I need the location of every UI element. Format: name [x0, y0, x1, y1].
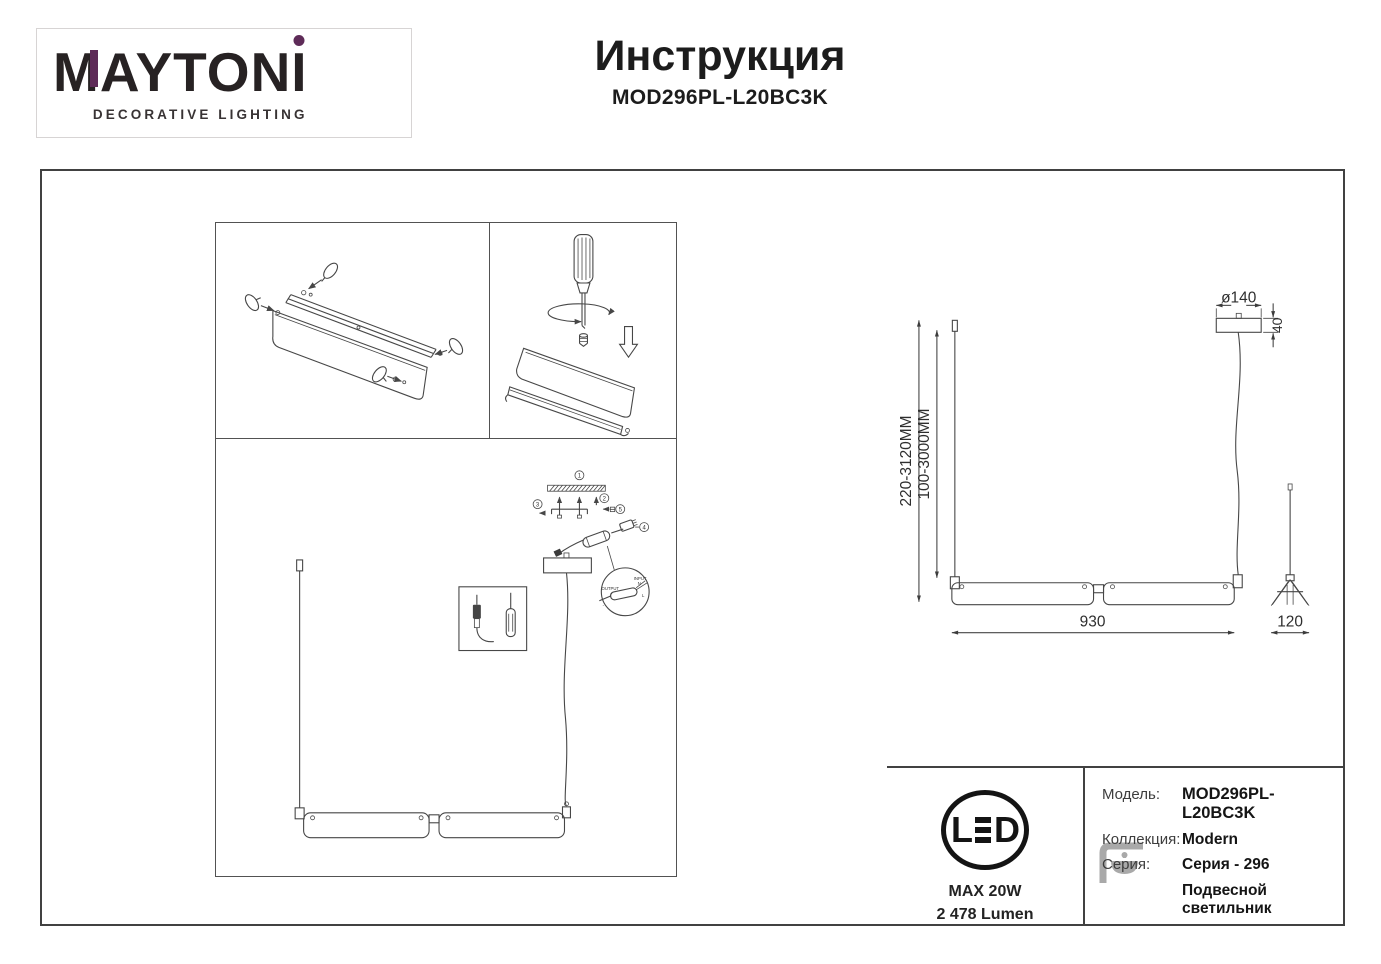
logo-letter-m: M [53, 45, 100, 100]
spec-box: L D MAX 20W 2 478 Lumen Модель: MOD296PL… [887, 766, 1343, 924]
fixture-end-view [1271, 484, 1309, 606]
thumb-screw-2 [243, 290, 266, 313]
washer-1 [302, 290, 306, 294]
dim-fixture-width: 120 [1271, 614, 1309, 633]
upper-shade [517, 348, 635, 417]
arrow-2 [261, 306, 274, 311]
led-logo: L D [941, 790, 1029, 870]
page-title: Инструкция [500, 32, 940, 81]
mounting-bracket [552, 497, 588, 518]
assembly-step-1 [216, 223, 490, 439]
product-info-cell: Модель: MOD296PL-L20BC3K Коллекция: Mode… [1085, 768, 1343, 924]
logo-m-accent [90, 50, 98, 87]
fixture-front-view [952, 583, 1234, 605]
svg-text:220-3120MM: 220-3120MM [898, 415, 915, 506]
step2-drawing [490, 223, 676, 438]
arrow-1 [309, 280, 322, 289]
shade-panel [273, 311, 427, 400]
logo-letter-i: I [291, 45, 307, 100]
lower-bar [506, 387, 630, 436]
model-number: MOD296PL-L20BC3K [500, 86, 940, 110]
collection-value: Modern [1182, 831, 1238, 849]
collection-label: Коллекция: [1102, 831, 1182, 848]
dimensions-panel: 220-3120MM 100-3000MM ø140 [887, 169, 1345, 926]
max-power: MAX 20W [949, 883, 1022, 901]
thumb-screw-3 [370, 364, 393, 387]
ceiling-canopy [544, 553, 592, 573]
screw [580, 334, 588, 347]
left-suspension-rod [950, 320, 959, 588]
tools-inset-box [459, 587, 527, 651]
svg-text:40: 40 [1269, 317, 1285, 333]
led-letter-d: D [994, 812, 1019, 848]
model-value: MOD296PL-L20BC3K [1182, 785, 1343, 823]
svg-text:ø140: ø140 [1221, 289, 1256, 306]
wire-connector-block [554, 549, 563, 557]
spec-row-type: Подвесной светильник [1102, 882, 1343, 918]
series-label: Серия: [1102, 856, 1182, 873]
down-arrow [620, 327, 638, 358]
power-cable [1236, 332, 1241, 574]
led-letter-l: L [951, 812, 972, 848]
brand-logo-inner: M AYTON I DECORATIVE LIGHTING [53, 45, 308, 122]
brand-tagline: DECORATIVE LIGHTING [53, 107, 308, 122]
svg-text:4: 4 [642, 525, 646, 531]
canopy-driver-wire [559, 540, 584, 554]
spec-row-collection: Коллекция: Modern [1102, 831, 1343, 849]
svg-text:1: 1 [578, 474, 582, 480]
svg-text:5: 5 [619, 507, 623, 513]
output-label: OUTPUT [602, 586, 620, 591]
svg-text:2: 2 [603, 496, 607, 502]
assembly-step-2 [490, 223, 676, 439]
svg-text:3: 3 [536, 502, 540, 508]
thumb-screw-4 [443, 336, 466, 359]
logo-letters-ayton: AYTON [100, 45, 291, 100]
svg-text:930: 930 [1080, 614, 1106, 631]
callout-4: 4 [635, 523, 648, 532]
dimension-drawing: 220-3120MM 100-3000MM ø140 [887, 171, 1343, 766]
fixture-body [304, 813, 565, 838]
svg-text:100-3000MM: 100-3000MM [916, 409, 933, 500]
installation-drawing: 1 2 3 [216, 439, 676, 876]
brand-wordmark: M AYTON I [53, 45, 308, 100]
callout-2: 2 [596, 494, 608, 505]
dim-fixture-length: 930 [952, 614, 1234, 633]
model-label: Модель: [1102, 786, 1182, 803]
assembly-diagrams-box: 1 2 3 [215, 222, 677, 877]
canopy [1216, 313, 1261, 332]
svg-text:120: 120 [1277, 614, 1303, 631]
spec-row-series: Серия: Серия - 296 [1102, 856, 1343, 874]
light-bar-isometric [286, 295, 436, 358]
screwdriver [574, 235, 593, 329]
brand-logo: M AYTON I DECORATIVE LIGHTING [36, 28, 412, 138]
callout-5: 5 [603, 505, 624, 514]
type-value: Подвесной светильник [1182, 882, 1343, 918]
screw-dot-3 [403, 381, 406, 384]
logo-i-dot [294, 35, 305, 46]
led-e-bars [975, 817, 991, 843]
callout-1: 1 [575, 471, 584, 480]
wiring-magnifier: OUTPUT + - INPUT N L [599, 568, 649, 616]
led-spec-cell: L D MAX 20W 2 478 Lumen [887, 768, 1085, 924]
power-cable [564, 573, 568, 806]
dim-canopy-height: 40 [1263, 303, 1285, 347]
installation-diagram: 1 2 3 [216, 439, 676, 876]
screw-dot-1 [309, 293, 312, 296]
assembly-panel: 1 2 3 [40, 169, 889, 926]
right-cable-hanger [562, 802, 570, 818]
dimension-svg: 220-3120MM 100-3000MM ø140 [887, 171, 1343, 766]
magnifier-leader [607, 546, 614, 570]
left-suspension-rod [295, 560, 304, 819]
rotation-arrow [548, 304, 609, 322]
series-value: Серия - 296 [1182, 856, 1270, 874]
step1-drawing [216, 223, 489, 438]
arrow-4 [435, 350, 447, 354]
spec-row-model: Модель: MOD296PL-L20BC3K [1102, 785, 1343, 823]
callout-3: 3 [533, 500, 544, 513]
input-n: N [638, 581, 641, 586]
ceiling-hatch [548, 485, 606, 491]
right-cable-hanger [1233, 575, 1242, 588]
thumb-screw-1 [318, 261, 340, 285]
document-header: Инструкция MOD296PL-L20BC3K [500, 32, 940, 110]
led-driver [582, 530, 612, 549]
input-l: L [642, 593, 645, 598]
luminous-flux: 2 478 Lumen [937, 906, 1034, 924]
